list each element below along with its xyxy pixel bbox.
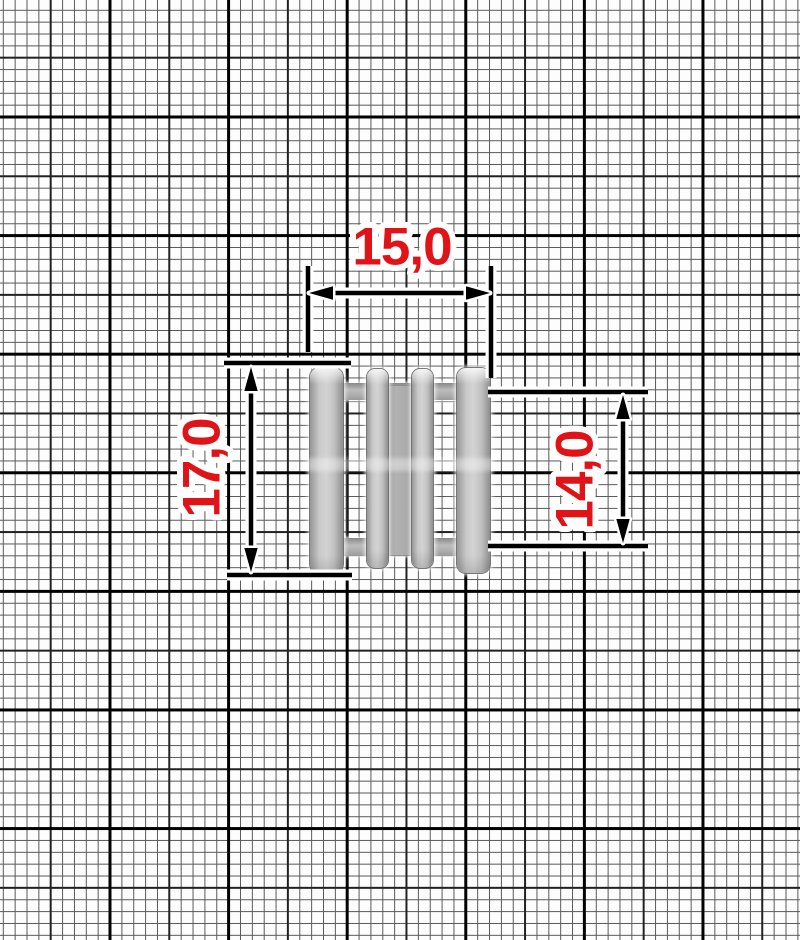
arrowhead-down <box>244 548 257 572</box>
arrowhead-down <box>616 519 629 543</box>
arrowhead-up <box>244 367 257 391</box>
graph-paper-canvas: 15,0 17,0 14,0 <box>0 0 800 940</box>
dimension-overlay: 15,0 17,0 14,0 <box>0 0 800 940</box>
dimension-label-right-height: 14,0 <box>546 430 605 529</box>
dimension-top-width: 15,0 <box>308 218 491 379</box>
arrowhead-up <box>616 395 629 419</box>
dimension-right-height: 14,0 <box>488 392 648 546</box>
dimension-left-height: 17,0 <box>173 363 353 575</box>
dimension-label-left-height: 17,0 <box>173 418 232 517</box>
dimension-label-top-width: 15,0 <box>352 218 451 277</box>
